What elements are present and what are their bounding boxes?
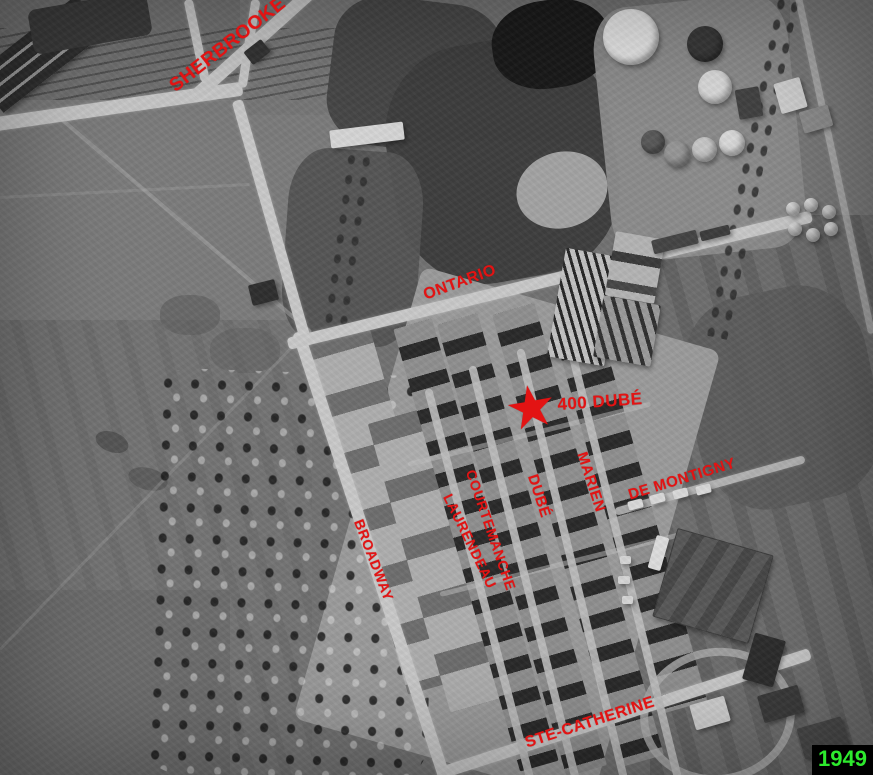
oil-tank-white-2 [698,70,732,104]
oil-tank-small-4 [719,130,745,156]
small-tank-6 [824,222,838,236]
oil-tank-dark [687,26,723,62]
truck-left-2 [618,576,630,584]
small-tank-5 [806,228,820,242]
small-tank-3 [822,205,836,219]
oil-tank-small-3 [692,137,717,162]
small-tank-1 [786,202,800,216]
greenhouse-striped-2 [593,295,661,366]
year-badge: 1949 [812,745,873,775]
location-marker-star-icon: ★ [500,375,561,441]
oil-tank-large-white [603,9,659,65]
small-tank-2 [804,198,818,212]
truck-left-3 [622,596,633,604]
oil-tank-small-1 [641,130,665,154]
dirt-patch-1 [160,295,220,335]
annotated-aerial-photo-1949: SHERBROOKE ONTARIO BROADWAY LAURENDEAU C… [0,0,873,775]
truck-left-1 [620,556,631,564]
tank-farm-dark-building [735,86,764,120]
oil-tank-small-2 [664,141,690,167]
small-tank-4 [788,222,802,236]
